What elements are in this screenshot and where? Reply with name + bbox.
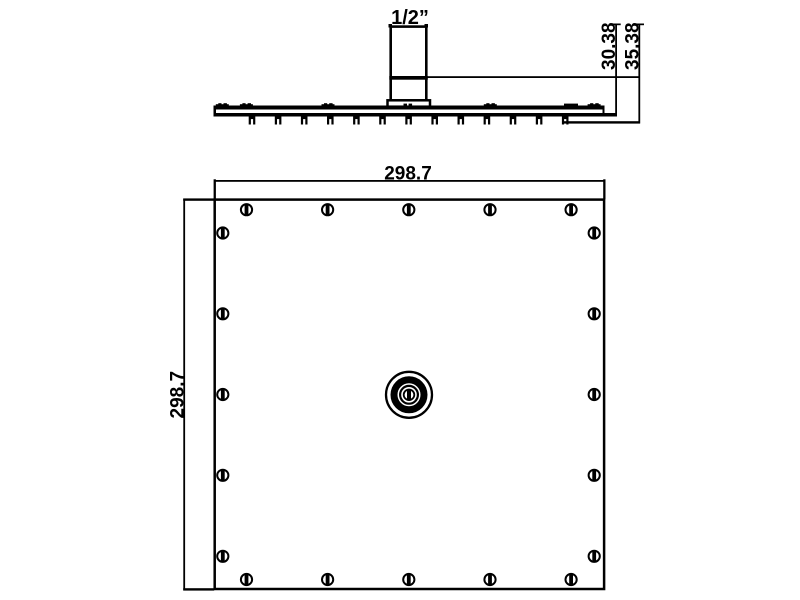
svg-text:30.38: 30.38 [599, 22, 620, 70]
svg-text:35.38: 35.38 [623, 22, 644, 70]
svg-text:298.7: 298.7 [384, 163, 432, 184]
svg-text:298.7: 298.7 [168, 371, 189, 419]
